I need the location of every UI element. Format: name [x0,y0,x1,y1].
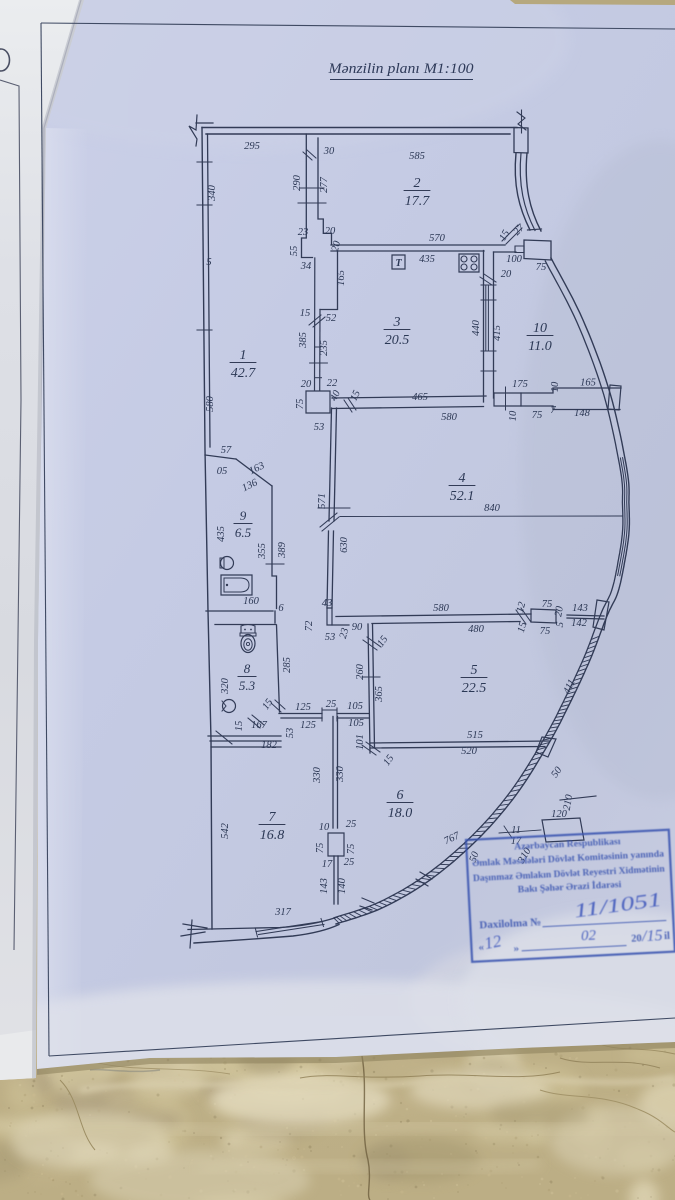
svg-text:/15: /15 [641,927,663,945]
svg-text:T: T [395,258,402,269]
svg-text:25: 25 [326,699,337,710]
svg-text:140: 140 [337,877,348,894]
svg-text:17.7: 17.7 [405,194,431,209]
svg-text:125: 125 [295,702,311,713]
svg-text:143: 143 [572,603,588,614]
svg-text:143: 143 [319,878,330,894]
svg-text:02: 02 [581,928,597,945]
svg-text:542: 542 [220,822,231,839]
svg-text:385: 385 [298,332,309,349]
svg-text:57: 57 [221,445,232,456]
svg-text:415: 415 [492,325,503,341]
svg-text:260: 260 [355,663,366,680]
svg-text:435: 435 [419,254,435,265]
svg-text:16.8: 16.8 [260,828,285,843]
svg-text:165: 165 [336,270,347,286]
svg-text:43: 43 [322,598,333,609]
svg-text:20: 20 [301,379,312,390]
svg-text:22.5: 22.5 [462,681,487,696]
svg-text:72: 72 [304,620,315,631]
svg-text:340: 340 [207,184,218,202]
svg-text:3: 3 [393,315,401,330]
svg-text:75: 75 [315,843,326,854]
svg-text:840: 840 [484,503,501,514]
svg-text:22: 22 [327,378,338,389]
svg-text:571: 571 [317,493,328,509]
svg-text:148: 148 [574,408,591,419]
svg-text:il: il [664,931,670,942]
svg-text:90: 90 [352,622,363,633]
svg-text:6: 6 [278,603,284,614]
svg-text:5: 5 [206,257,211,268]
svg-text:55: 55 [289,246,300,257]
svg-text:5: 5 [471,663,478,678]
svg-text:465: 465 [412,392,428,403]
svg-text:53: 53 [325,632,336,643]
svg-text:235: 235 [319,340,330,356]
svg-text:277: 277 [319,176,330,193]
svg-text:330: 330 [335,765,346,783]
svg-text:105: 105 [348,718,364,729]
svg-text:182: 182 [261,740,278,751]
svg-text:175: 175 [512,379,528,390]
svg-text:2: 2 [414,176,421,191]
svg-text:5.3: 5.3 [239,678,256,693]
svg-text:7: 7 [550,405,556,416]
svg-text:520: 520 [461,746,478,757]
svg-text:20.5: 20.5 [385,333,410,348]
svg-text:101: 101 [355,734,366,750]
svg-text:52.1: 52.1 [450,489,475,504]
svg-text:18.0: 18.0 [388,806,413,821]
svg-text:11.0: 11.0 [528,339,551,354]
svg-text:23: 23 [298,227,309,238]
svg-text:142: 142 [571,618,588,629]
svg-text:165: 165 [580,378,596,389]
svg-text:20: 20 [501,269,512,280]
svg-text:515: 515 [467,730,483,741]
svg-text:34: 34 [300,261,312,272]
svg-text:1: 1 [240,348,247,363]
svg-text:105: 105 [347,701,363,712]
svg-text:30: 30 [323,146,335,157]
svg-text:10: 10 [533,321,547,336]
svg-text:25: 25 [346,819,357,830]
svg-text:53: 53 [314,422,325,433]
svg-text:75: 75 [295,399,306,410]
svg-text:125: 125 [300,720,316,731]
svg-text:75: 75 [542,599,553,610]
svg-text:355: 355 [257,543,268,560]
svg-text:585: 585 [409,151,425,162]
svg-text:15: 15 [234,721,245,732]
svg-text:100: 100 [506,254,523,265]
svg-text:20: 20 [631,933,642,945]
svg-text:Mənzilin planı M1:100: Mənzilin planı M1:100 [327,61,474,77]
svg-text:120: 120 [551,809,568,820]
svg-text:160: 160 [243,596,260,607]
svg-text:75: 75 [540,626,551,637]
svg-text:53: 53 [285,728,296,739]
svg-text:389: 389 [277,541,288,559]
svg-text:167: 167 [251,720,268,731]
svg-text:15: 15 [300,308,311,319]
svg-text:285: 285 [282,657,293,673]
svg-text:7: 7 [269,810,277,825]
svg-text:10: 10 [319,822,330,833]
svg-text:10: 10 [508,410,519,421]
svg-text:580: 580 [205,395,216,412]
svg-text:75: 75 [536,262,547,273]
svg-text:365: 365 [374,686,385,703]
svg-text:320: 320 [220,677,231,695]
svg-text:17: 17 [322,859,333,870]
svg-text:435: 435 [216,526,227,542]
svg-text:20: 20 [325,226,336,237]
svg-text:330: 330 [312,766,323,784]
svg-text:440: 440 [471,319,482,336]
svg-text:52: 52 [326,313,337,324]
svg-text:9: 9 [240,508,247,523]
svg-text:580: 580 [433,603,450,614]
svg-text:290: 290 [292,174,303,191]
svg-text:11: 11 [511,825,521,836]
svg-text:42.7: 42.7 [231,366,257,381]
svg-text:317: 317 [274,907,292,918]
svg-text:480: 480 [468,624,485,635]
svg-text:75: 75 [346,844,357,855]
svg-text:10: 10 [550,381,561,392]
svg-text:6: 6 [397,788,404,803]
svg-text:4: 4 [459,471,466,486]
svg-text:295: 295 [244,141,260,152]
svg-text:75: 75 [532,410,543,421]
svg-text:580: 580 [441,412,458,423]
svg-text:25: 25 [344,857,355,868]
svg-text:05: 05 [217,466,228,477]
svg-text:570: 570 [429,233,446,244]
svg-text:»: » [513,942,519,954]
svg-text:630: 630 [339,536,350,553]
svg-text:8: 8 [244,661,251,676]
svg-text:6.5: 6.5 [235,525,252,540]
